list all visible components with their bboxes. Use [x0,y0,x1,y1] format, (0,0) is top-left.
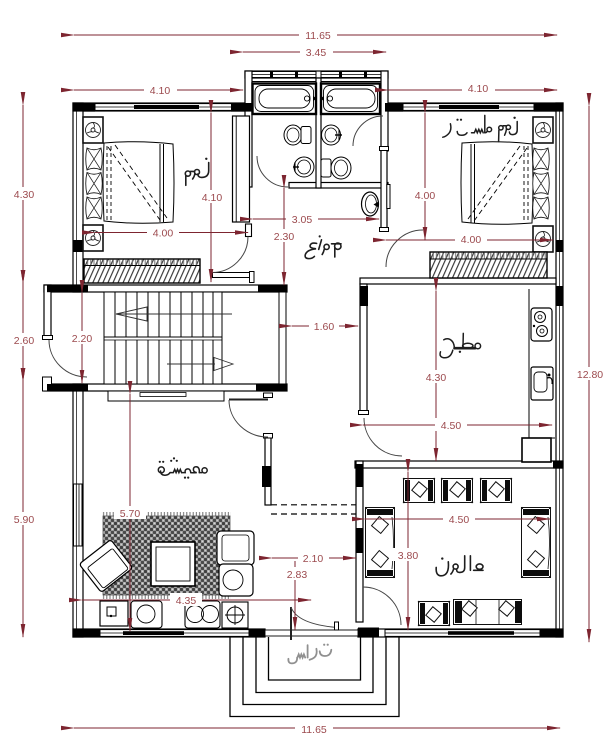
svg-text:3.45: 3.45 [306,47,327,59]
svg-text:4.00: 4.00 [153,228,174,240]
svg-text:2.83: 2.83 [287,569,308,581]
svg-text:4.10: 4.10 [202,192,223,204]
svg-text:11.65: 11.65 [301,724,327,736]
svg-text:12.80: 12.80 [577,369,603,381]
svg-text:4.10: 4.10 [468,83,489,95]
svg-text:4.00: 4.00 [461,234,482,246]
svg-text:4.00: 4.00 [415,190,436,202]
svg-text:4.30: 4.30 [14,189,35,201]
svg-text:4.50: 4.50 [441,420,462,432]
svg-text:1.60: 1.60 [314,321,335,333]
svg-text:5.90: 5.90 [14,514,35,526]
svg-text:2.20: 2.20 [72,333,93,345]
svg-text:4.35: 4.35 [176,595,197,607]
svg-text:2.10: 2.10 [303,553,324,565]
svg-text:4.30: 4.30 [426,372,447,384]
svg-text:4.50: 4.50 [449,514,470,526]
svg-text:5.70: 5.70 [120,508,141,520]
svg-text:2.30: 2.30 [274,231,295,243]
svg-text:11.65: 11.65 [305,30,331,42]
svg-text:2.60: 2.60 [14,335,35,347]
svg-text:3.05: 3.05 [292,214,313,226]
svg-text:3.80: 3.80 [398,550,419,562]
svg-text:4.10: 4.10 [150,85,171,97]
